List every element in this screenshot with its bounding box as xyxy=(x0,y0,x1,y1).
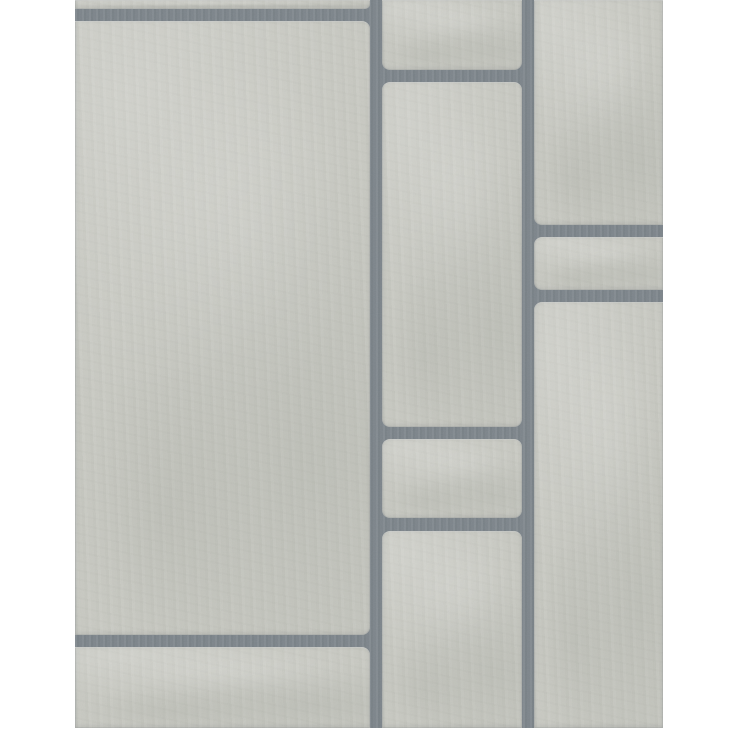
tile-left-bottom xyxy=(75,647,370,728)
product-photo-canvas xyxy=(0,0,736,736)
tile-right-top xyxy=(534,0,663,225)
tile-right-large xyxy=(534,302,663,728)
tile-left-large xyxy=(75,21,370,635)
tile-middle-small xyxy=(382,439,522,518)
tile-right-short xyxy=(534,237,663,290)
wallpaper-swatch xyxy=(75,0,663,728)
tile-middle-bottom xyxy=(382,531,522,728)
tile-middle-top xyxy=(382,0,522,70)
tile-middle-tall xyxy=(382,82,522,427)
tile-left-top-sliver xyxy=(75,0,370,9)
